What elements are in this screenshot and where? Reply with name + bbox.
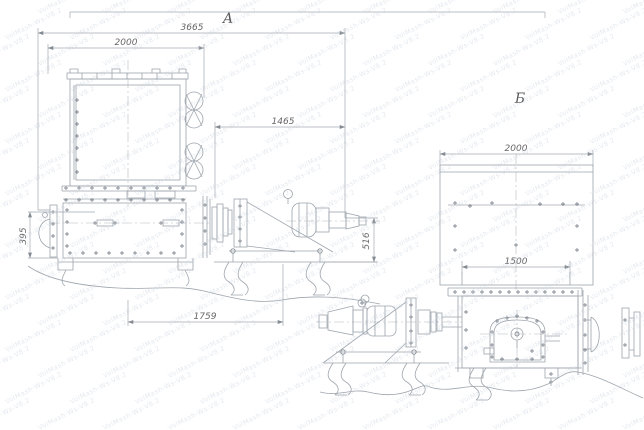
- dim-2000a-label: 2000: [115, 38, 138, 48]
- dim-1500-label: 1500: [505, 257, 528, 267]
- left-bracket: [38, 205, 57, 257]
- trough-body: [50, 198, 210, 286]
- dimension-1465: 1465: [215, 117, 345, 198]
- engineering-drawing: 3665 2000 1465 А: [0, 0, 644, 430]
- dimension-516: 516: [318, 218, 378, 262]
- chamber-box: [67, 60, 188, 206]
- dimension-3665: 3665: [38, 23, 345, 218]
- flange-b: [448, 288, 582, 296]
- drawing-sheet: 3665 2000 1465 А: [0, 0, 644, 430]
- view-a-label: А: [222, 11, 234, 27]
- ground-line-a: [28, 266, 380, 304]
- dim-2000b-label: 2000: [505, 144, 528, 154]
- dim-3665-label: 3665: [181, 23, 204, 33]
- top-reference-line: [70, 12, 545, 18]
- chamber-flange: [62, 186, 196, 198]
- dim-1465-label: 1465: [272, 117, 295, 127]
- view-a-drawing: 3665 2000 1465 А: [19, 11, 545, 326]
- dim-516-label: 516: [362, 232, 372, 249]
- fan-symbols: [185, 92, 203, 179]
- dimension-2000-b: 2000: [440, 144, 593, 167]
- ground-line-b: [320, 372, 643, 398]
- dimension-1759: 1759: [128, 264, 283, 326]
- view-b-label: Б: [514, 91, 525, 107]
- dimension-2000-a: 2000: [48, 38, 204, 98]
- dim-395-label: 395: [19, 227, 29, 244]
- drive-assembly-a: [203, 190, 380, 308]
- drive-assembly-b: [316, 295, 462, 395]
- dim-1759-label: 1759: [194, 312, 217, 322]
